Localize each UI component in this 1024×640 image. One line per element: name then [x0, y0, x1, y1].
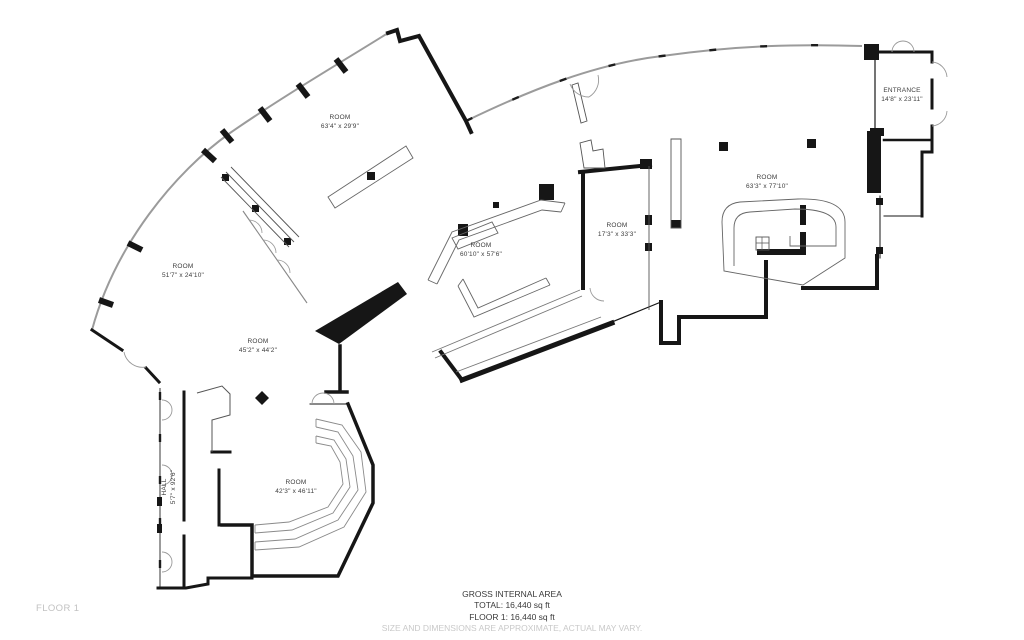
room-label-left: ROOM 51'7" x 24'10" [162, 263, 204, 281]
room-name: ROOM [162, 263, 204, 272]
room-name: ROOM [746, 174, 788, 183]
room-dimensions: 63'3" x 77'10" [746, 183, 788, 192]
room-dimensions: 45'2" x 44'2" [239, 347, 277, 356]
disclaimer: SIZE AND DIMENSIONS ARE APPROXIMATE, ACT… [0, 623, 1024, 634]
wall-piers [99, 59, 346, 305]
gross-internal-area-title: GROSS INTERNAL AREA [0, 589, 1024, 600]
room-dimensions: 17'3" x 33'3" [598, 231, 636, 240]
room-name: ROOM [321, 114, 359, 123]
floor-plan-drawing [0, 0, 1024, 640]
outer-walls [92, 30, 932, 588]
room-label-mid-left: ROOM 45'2" x 44'2" [239, 338, 277, 356]
room-name: ROOM [275, 479, 317, 488]
curtain-walls [92, 33, 862, 588]
room-name: ROOM [239, 338, 277, 347]
floor-plan-page: ROOM 63'4" x 29'9" ROOM 51'7" x 24'10" R… [0, 0, 1024, 640]
room-dimensions: 42'3" x 46'11" [275, 488, 317, 497]
area-summary: GROSS INTERNAL AREA TOTAL: 16,440 sq ft … [0, 589, 1024, 634]
room-dimensions: 5'7" x 92'6" [170, 470, 179, 504]
hall-label: HALL 5'7" x 92'6" [161, 470, 179, 504]
room-name: HALL [161, 470, 170, 504]
total-area: TOTAL: 16,440 sq ft [0, 600, 1024, 611]
room-name: ROOM [460, 242, 502, 251]
room-label-top-left: ROOM 63'4" x 29'9" [321, 114, 359, 132]
room-label-bottom: ROOM 42'3" x 46'11" [275, 479, 317, 497]
room-label-mid-right: ROOM 17'3" x 33'3" [598, 222, 636, 240]
room-label-right: ROOM 63'3" x 77'10" [746, 174, 788, 192]
entrance-label: ENTRANCE 14'8" x 23'11" [881, 87, 923, 105]
room-label-center: ROOM 60'10" x 57'6" [460, 242, 502, 260]
room-name: ROOM [598, 222, 636, 231]
room-dimensions: 63'4" x 29'9" [321, 123, 359, 132]
room-dimensions: 60'10" x 57'6" [460, 251, 502, 260]
floor1-area: FLOOR 1: 16,440 sq ft [0, 612, 1024, 623]
room-dimensions: 14'8" x 23'11" [881, 96, 923, 105]
room-name: ENTRANCE [881, 87, 923, 96]
room-dimensions: 51'7" x 24'10" [162, 272, 204, 281]
